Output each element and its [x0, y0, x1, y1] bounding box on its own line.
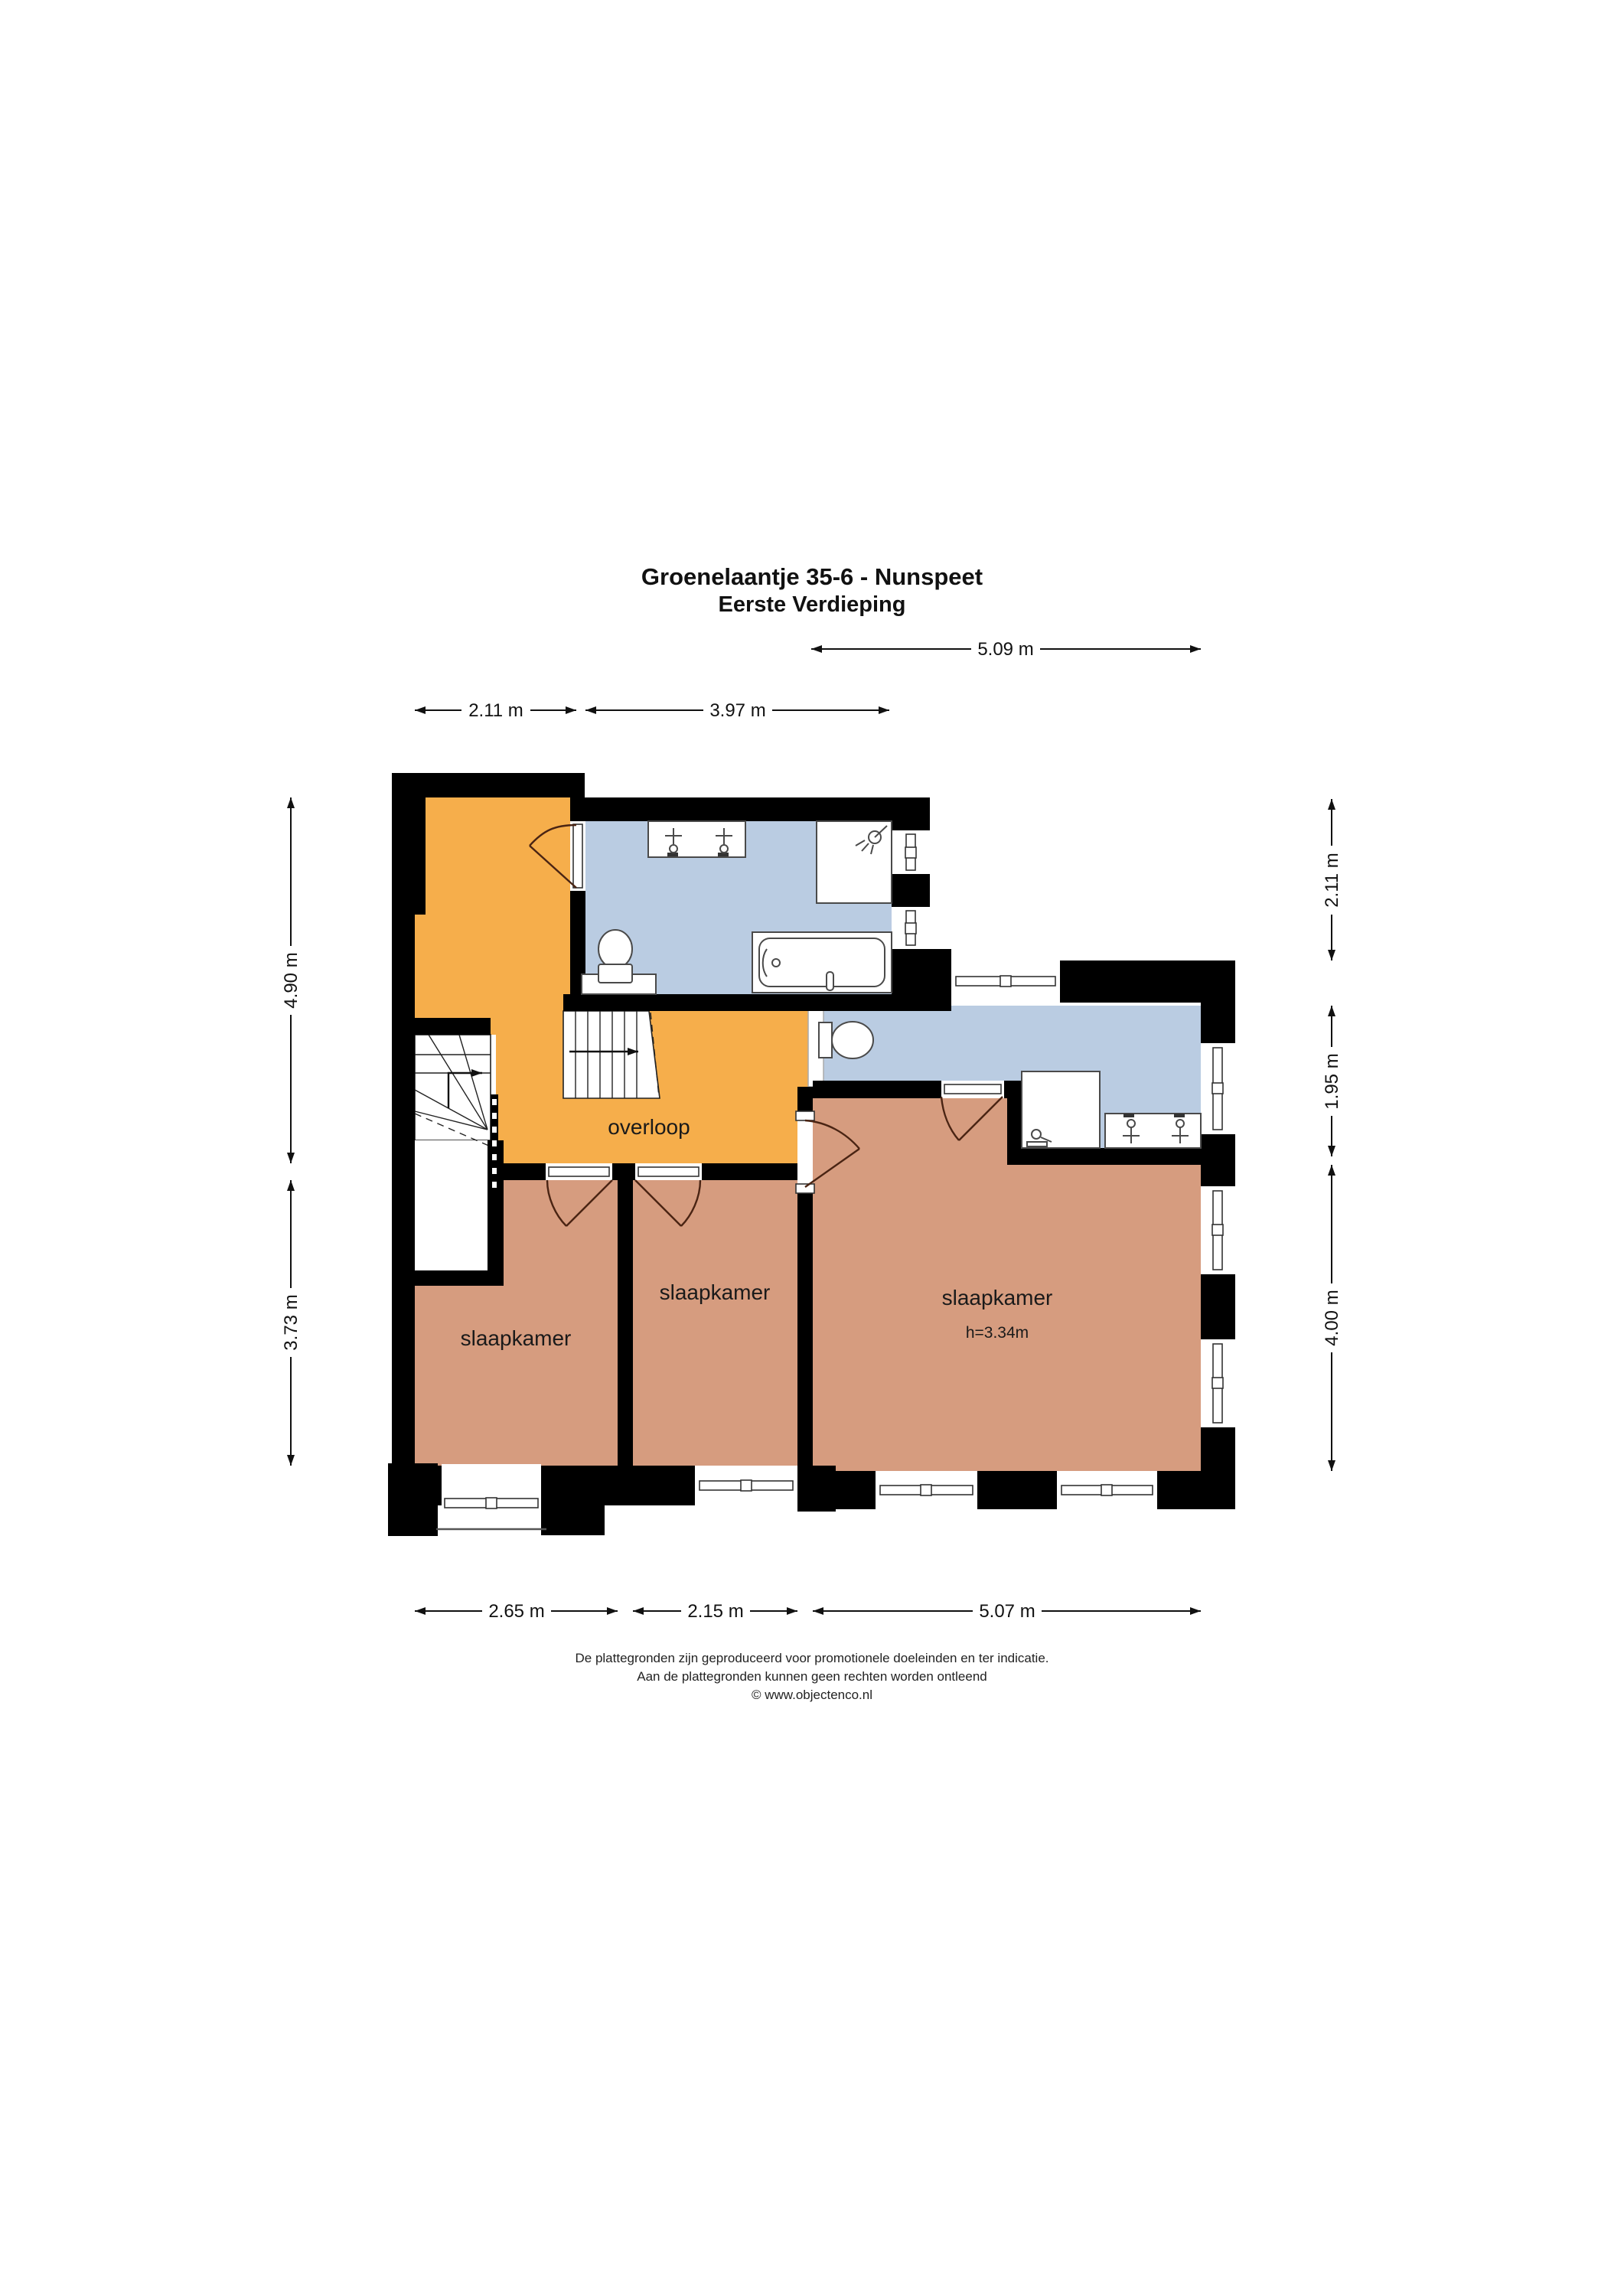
floorplan-page: Groenelaantje 35-6 - Nunspeet Eerste Ver… — [0, 0, 1624, 2296]
bathtub — [752, 932, 892, 993]
dimension-right-195: 1.95 m — [1321, 1006, 1342, 1156]
svg-text:3.97 m: 3.97 m — [709, 700, 765, 721]
double-sink-counter — [648, 821, 745, 857]
label-bedroom3-height: h=3.34m — [966, 1324, 1029, 1342]
footer-disclaimer-line1: De plattegronden zijn geproduceerd voor … — [575, 1651, 1048, 1665]
window-east-bathroom-2 — [892, 907, 930, 949]
stair-railing — [491, 1094, 498, 1197]
page-title: Groenelaantje 35-6 - Nunspeet — [641, 563, 983, 590]
shower-cabin-bathroom — [817, 821, 892, 903]
door-opening-bedroom2 — [635, 1163, 702, 1180]
svg-text:2.11 m: 2.11 m — [468, 700, 523, 721]
svg-text:5.07 m: 5.07 m — [979, 1601, 1035, 1622]
window-south-bedroom3-1 — [876, 1471, 977, 1509]
label-bedroom2: slaapkamer — [660, 1280, 771, 1304]
double-sink-counter-corridor — [1105, 1114, 1201, 1148]
door-opening-bedroom3-bath — [941, 1081, 1004, 1098]
floorplan-canvas: Groenelaantje 35-6 - Nunspeet Eerste Ver… — [0, 0, 1624, 2296]
window-east-bath-corridor — [1201, 1043, 1235, 1134]
dimension-top-211: 2.11 m — [415, 700, 576, 721]
svg-text:4.00 m: 4.00 m — [1322, 1290, 1342, 1345]
svg-text:5.09 m: 5.09 m — [977, 639, 1033, 660]
page-subtitle: Eerste Verdieping — [719, 592, 906, 617]
dimension-bottom-507: 5.07 m — [813, 1600, 1201, 1622]
label-bedroom3: slaapkamer — [942, 1286, 1053, 1309]
window-south-bedroom3-2 — [1057, 1471, 1157, 1509]
dimension-right-400: 4.00 m — [1321, 1165, 1342, 1471]
dimension-left-373: 3.73 m — [280, 1180, 302, 1466]
dimension-top-509: 5.09 m — [811, 638, 1201, 660]
dimension-top-397: 3.97 m — [585, 700, 889, 721]
window-south-bedroom2 — [695, 1466, 797, 1505]
window-east-bedroom3-1 — [1201, 1186, 1235, 1274]
svg-text:3.73 m: 3.73 m — [281, 1294, 302, 1350]
footer-disclaimer-line2: Aan de plattegronden kunnen geen rechten… — [637, 1669, 986, 1684]
winder-staircase — [415, 1035, 491, 1270]
window-north — [951, 960, 1060, 1003]
door-opening-bedroom3-hall — [796, 1111, 814, 1193]
dimension-bottom-215: 2.15 m — [633, 1600, 797, 1622]
svg-text:2.15 m: 2.15 m — [687, 1601, 743, 1622]
svg-text:2.11 m: 2.11 m — [1322, 853, 1342, 908]
shower-cabin-corridor — [1022, 1071, 1100, 1148]
door-opening-bathroom — [570, 821, 585, 891]
straight-staircase — [563, 1011, 660, 1098]
svg-text:1.95 m: 1.95 m — [1322, 1053, 1342, 1109]
label-bedroom1: slaapkamer — [461, 1326, 572, 1350]
window-bay-bedroom1 — [436, 1464, 546, 1532]
toilet-corridor — [819, 1022, 873, 1058]
label-overloop: overloop — [608, 1115, 690, 1139]
door-opening-bedroom1 — [546, 1163, 612, 1180]
window-east-bedroom3-2 — [1201, 1339, 1235, 1427]
svg-text:4.90 m: 4.90 m — [281, 952, 302, 1008]
room-bedroom-2 — [633, 1180, 797, 1466]
dimension-bottom-265: 2.65 m — [415, 1600, 618, 1622]
window-east-bathroom-1 — [892, 830, 930, 874]
footer-copyright: © www.objectenco.nl — [752, 1688, 872, 1702]
svg-text:2.65 m: 2.65 m — [488, 1601, 544, 1622]
dimension-left-490: 4.90 m — [280, 797, 302, 1163]
dimension-right-211: 2.11 m — [1321, 799, 1342, 960]
